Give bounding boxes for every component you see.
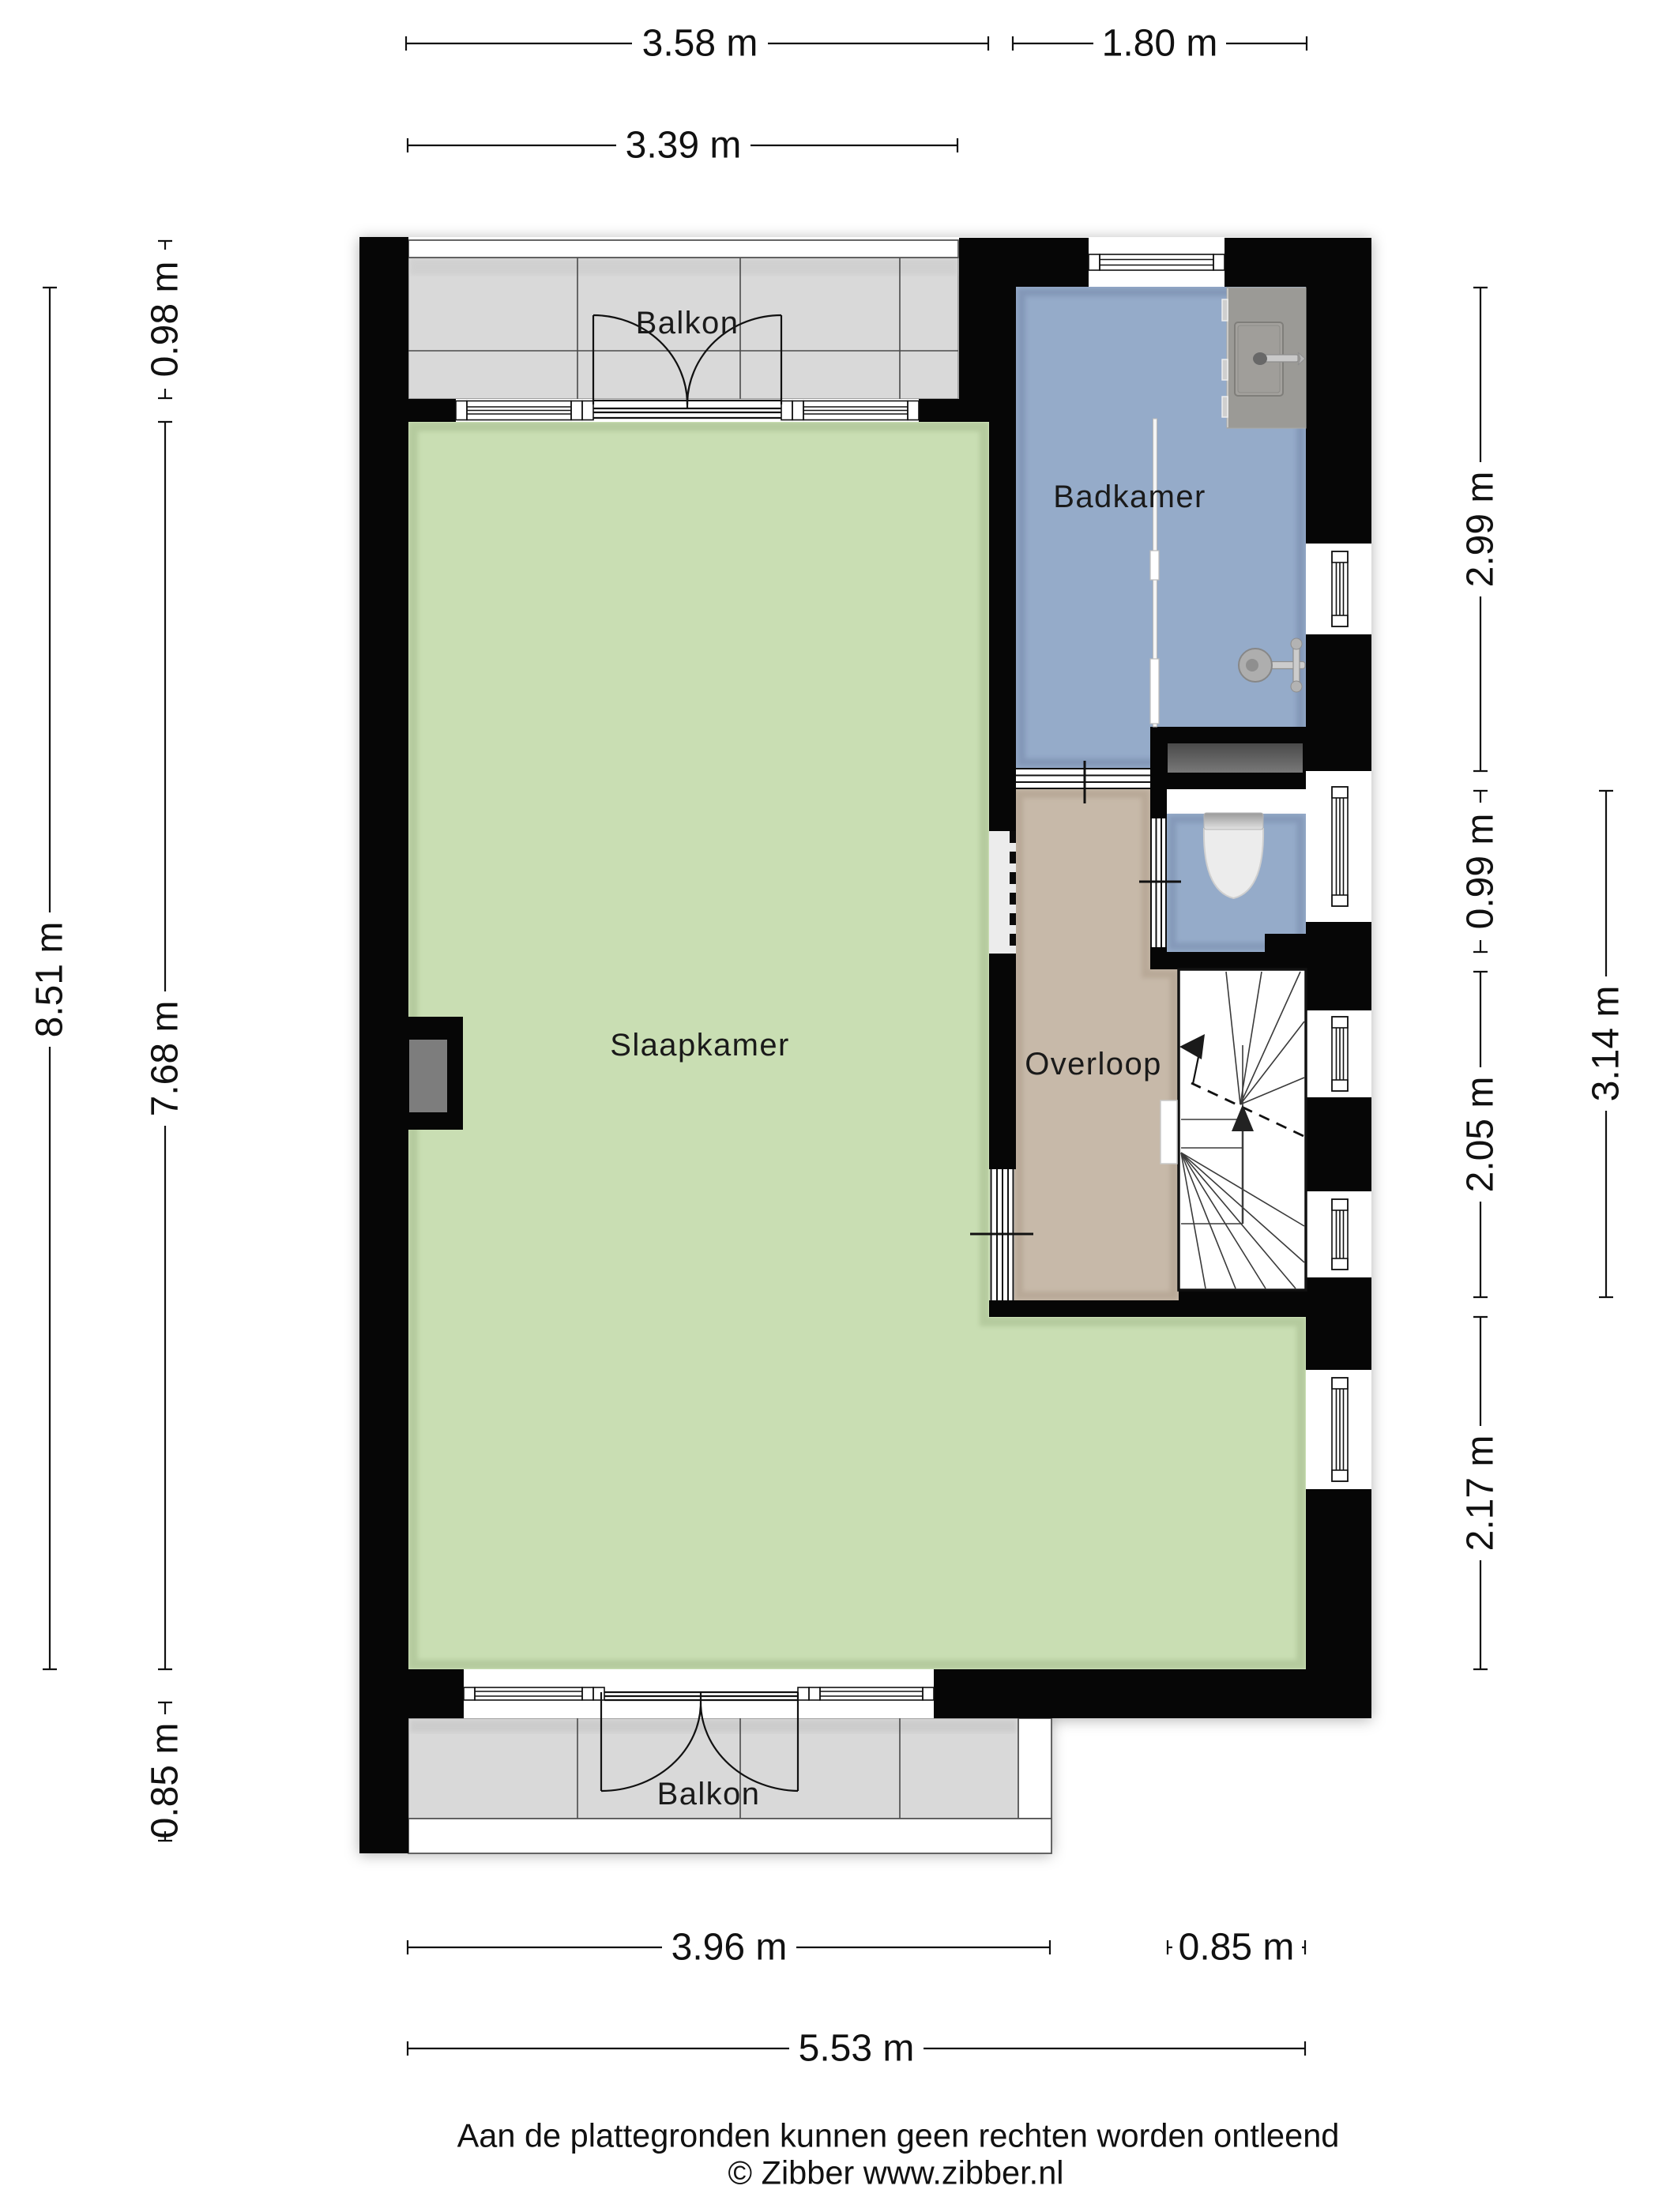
svg-text:Badkamer: Badkamer — [1053, 480, 1206, 514]
svg-text:0.98 m: 0.98 m — [145, 261, 186, 378]
svg-text:3.96 m: 3.96 m — [671, 1927, 788, 1969]
svg-text:8.51 m: 8.51 m — [29, 922, 71, 1038]
svg-text:2.99 m: 2.99 m — [1460, 472, 1502, 588]
svg-text:Balkon: Balkon — [657, 1777, 761, 1811]
svg-text:0.99 m: 0.99 m — [1460, 814, 1502, 930]
svg-text:2.05 m: 2.05 m — [1460, 1077, 1502, 1193]
svg-text:1.80 m: 1.80 m — [1102, 23, 1218, 65]
svg-text:2.17 m: 2.17 m — [1460, 1435, 1502, 1552]
svg-text:Overloop: Overloop — [1025, 1047, 1162, 1082]
svg-text:3.14 m: 3.14 m — [1586, 986, 1627, 1102]
svg-text:5.53 m: 5.53 m — [799, 2028, 915, 2070]
svg-text:Slaapkamer: Slaapkamer — [610, 1028, 789, 1063]
svg-text:3.58 m: 3.58 m — [642, 23, 758, 65]
svg-text:0.85 m: 0.85 m — [145, 1723, 186, 1839]
svg-text:Aan de plattegronden kunnen ge: Aan de plattegronden kunnen geen rechten… — [457, 2117, 1340, 2154]
svg-text:Balkon: Balkon — [636, 306, 739, 340]
svg-text:7.68 m: 7.68 m — [145, 1001, 186, 1117]
svg-text:3.39 m: 3.39 m — [626, 125, 742, 167]
svg-text:© Zibber www.zibber.nl: © Zibber www.zibber.nl — [728, 2154, 1064, 2191]
svg-text:0.85 m: 0.85 m — [1179, 1927, 1295, 1969]
